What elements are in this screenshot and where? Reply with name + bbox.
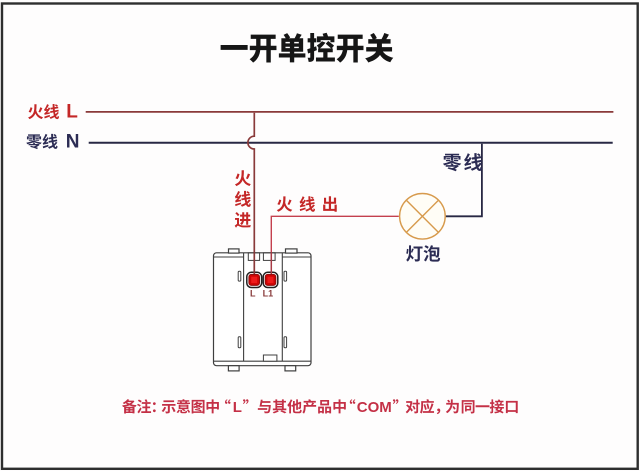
svg-text:COM: COM xyxy=(357,399,392,416)
svg-text:N: N xyxy=(66,132,80,153)
svg-text:L: L xyxy=(233,399,242,416)
svg-text:L1: L1 xyxy=(263,289,274,299)
svg-text:L: L xyxy=(250,289,256,299)
svg-text:L: L xyxy=(66,102,78,123)
